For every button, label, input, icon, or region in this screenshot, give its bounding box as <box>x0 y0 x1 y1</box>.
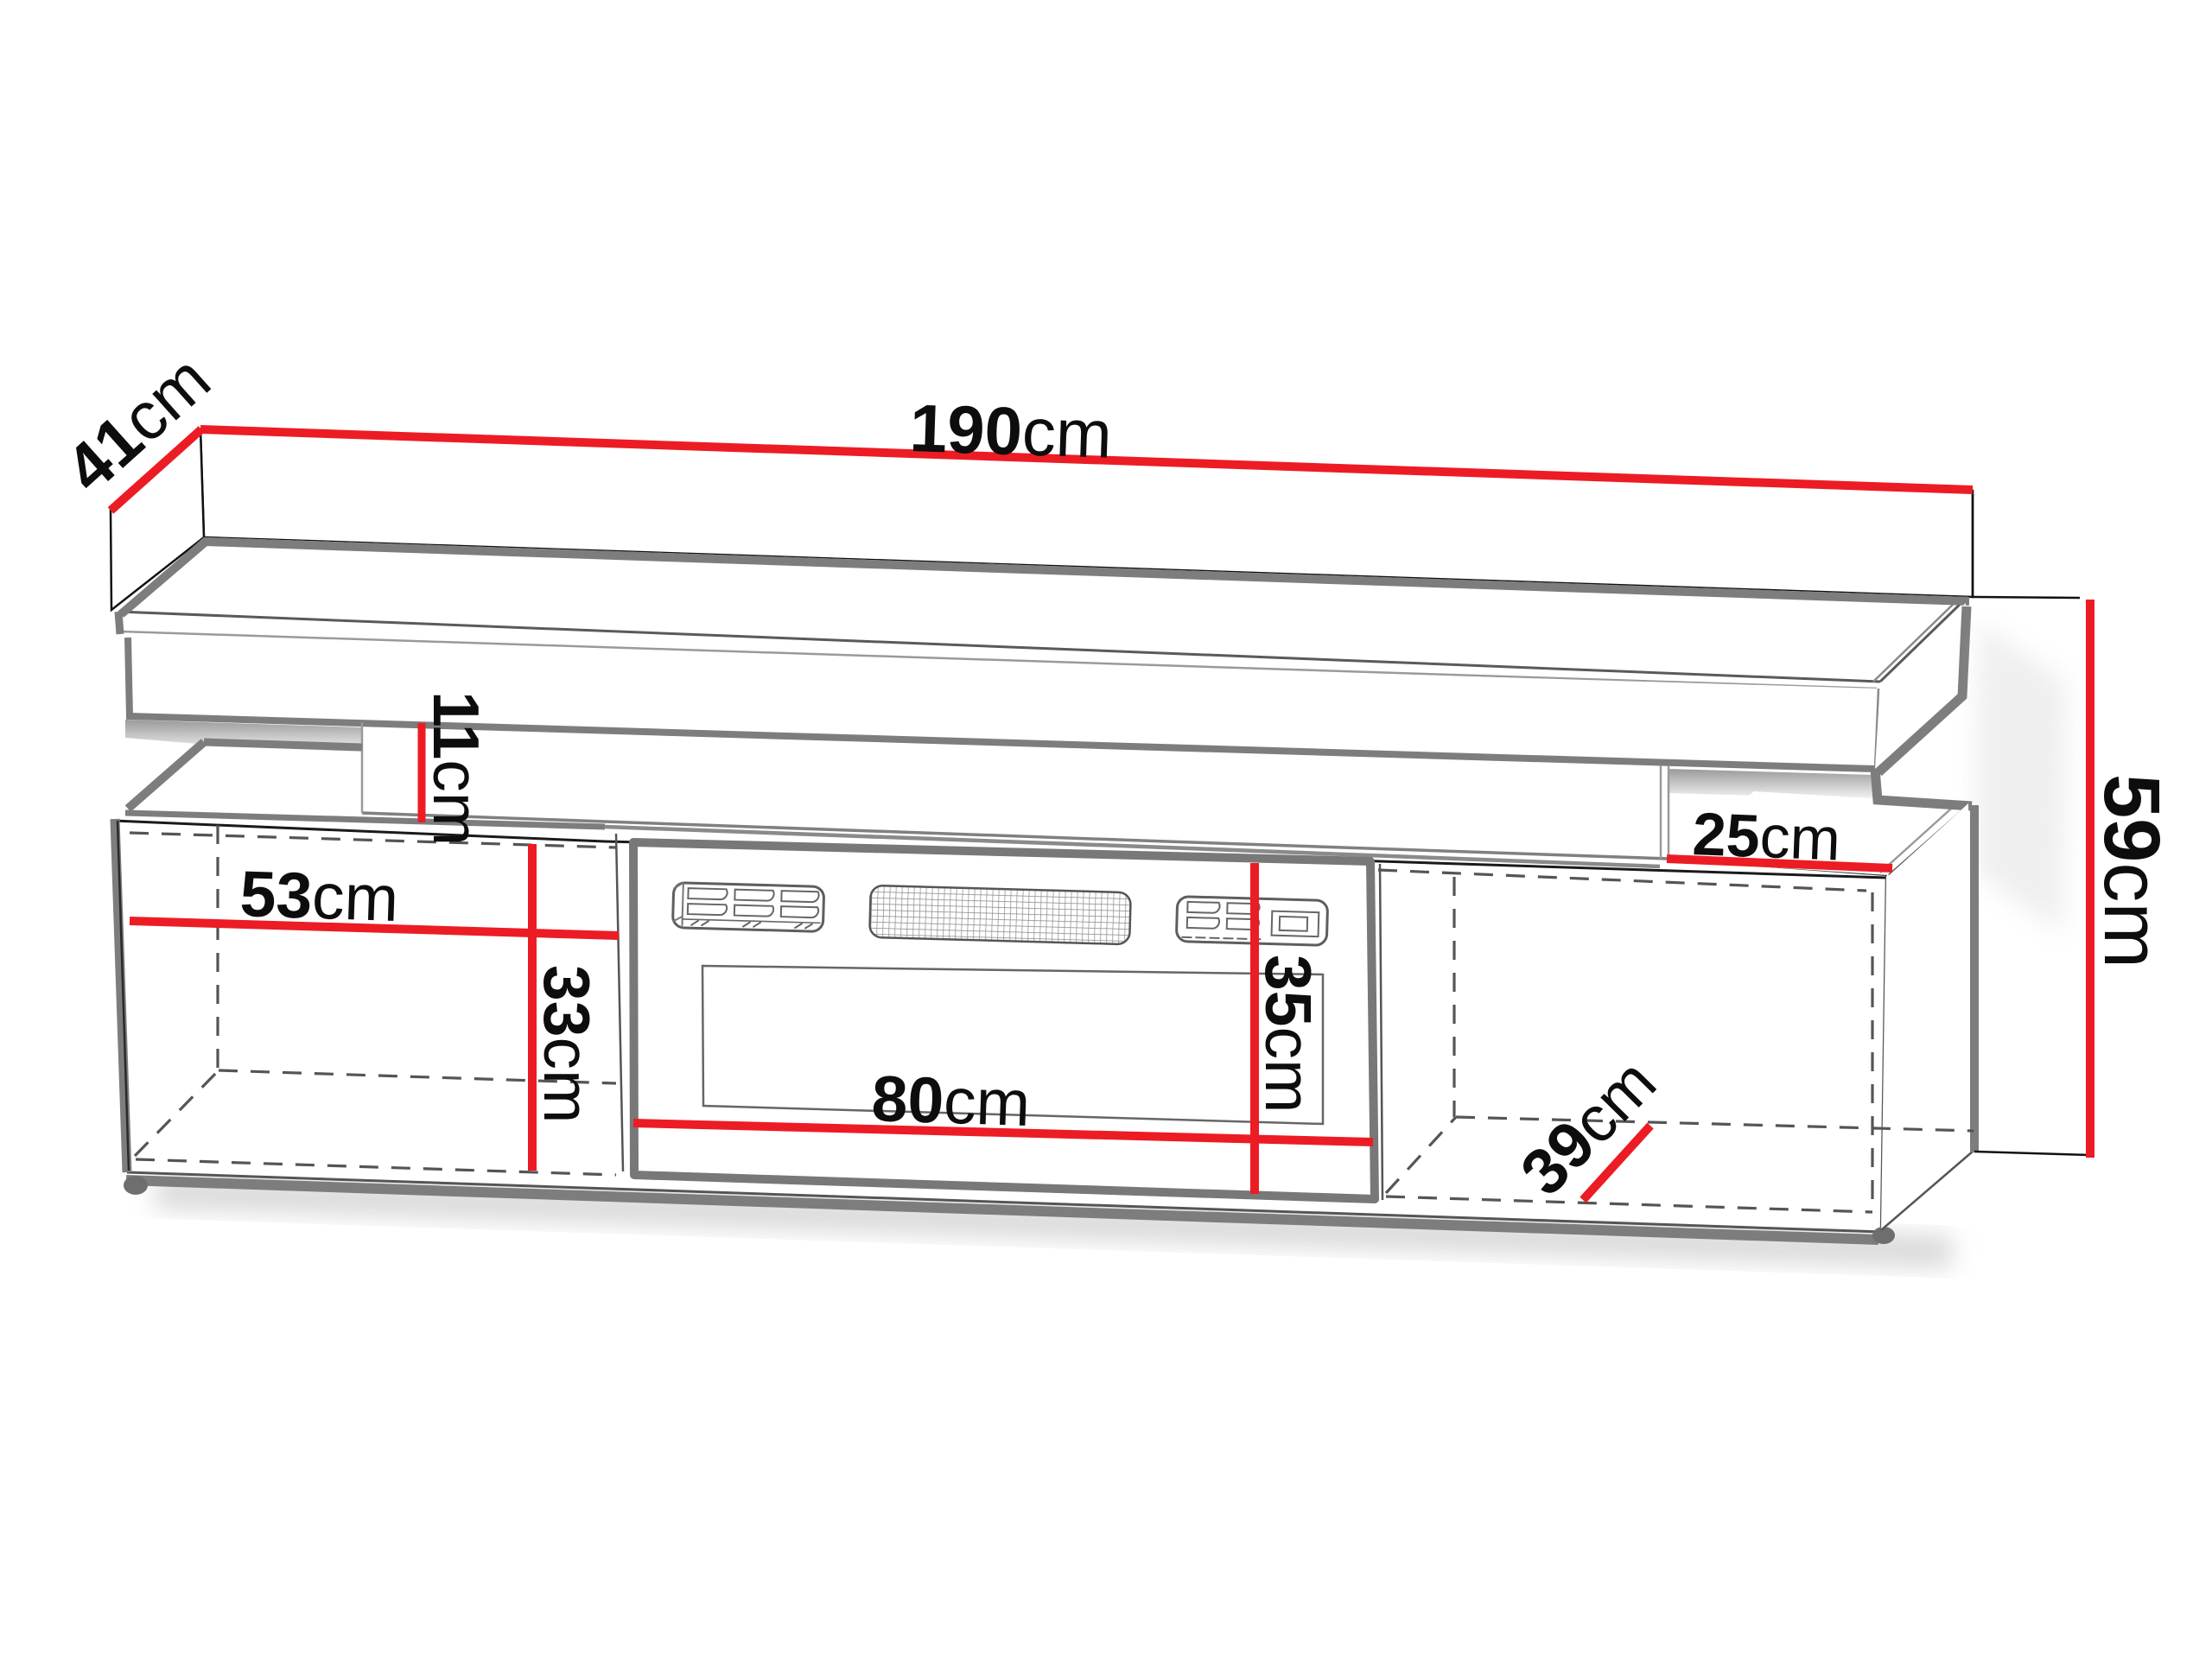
svg-text:59cm: 59cm <box>2088 774 2176 968</box>
svg-text:190cm: 190cm <box>908 390 1113 473</box>
svg-text:53cm: 53cm <box>238 857 399 935</box>
svg-text:80cm: 80cm <box>870 1062 1031 1139</box>
svg-text:25cm: 25cm <box>1691 800 1841 873</box>
svg-text:33cm: 33cm <box>531 965 603 1123</box>
svg-text:35cm: 35cm <box>1252 955 1325 1113</box>
svg-text:11cm: 11cm <box>420 691 493 846</box>
